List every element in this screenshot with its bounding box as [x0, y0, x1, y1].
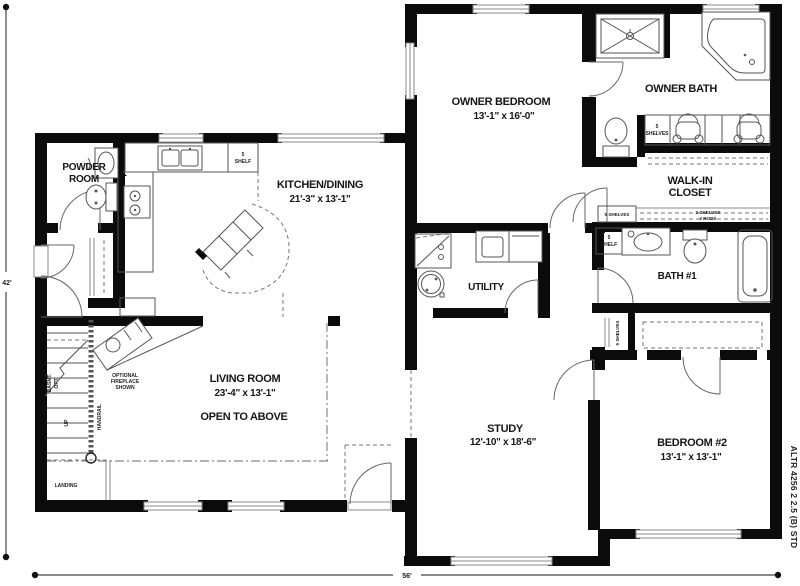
room-label-wic-1: WALK-IN — [668, 175, 713, 187]
bath1-door — [598, 268, 633, 303]
rear-door — [348, 463, 391, 510]
room-dims-kitchen: 21'-3" x 13'-1" — [290, 194, 351, 205]
dim-width: 56' — [402, 573, 412, 580]
window — [473, 5, 529, 13]
vanity-sink — [734, 114, 764, 143]
label-pantry-1: 5 — [242, 152, 245, 158]
hall-closet-door — [605, 318, 609, 347]
owner-bath-vanity — [670, 114, 770, 145]
water-heater — [418, 271, 444, 297]
bath1-toilet — [683, 230, 707, 263]
room-dims-living: 23'-4" x 13'-1" — [215, 388, 276, 399]
label-handrail: HANDRAIL — [97, 404, 103, 430]
kitchen-sink — [158, 146, 202, 170]
window — [451, 557, 552, 565]
corner-tub — [702, 12, 770, 80]
newel-post — [86, 453, 96, 463]
owner-bath-door — [589, 62, 623, 96]
bedroom2-closet — [643, 322, 762, 348]
dim-height: 42' — [2, 280, 12, 287]
range — [124, 186, 150, 218]
room-label-bedroom2: BEDROOM #2 — [657, 437, 727, 449]
room-label-bath1: BATH #1 — [658, 271, 698, 282]
room-label-living: LIVING ROOM — [210, 373, 281, 385]
shower — [596, 14, 664, 58]
label-bath1-shelf-2: SHELF — [601, 242, 617, 248]
room-label-owner-bedroom: OWNER BEDROOM — [452, 96, 551, 108]
owner-bath-shelves-box — [645, 115, 670, 145]
room-dims-bedroom2: 13'-1" x 13'-1" — [661, 452, 722, 463]
bath1-tub — [738, 230, 772, 302]
dryer — [509, 231, 542, 262]
label-basement-opt-1: BASMT. — [47, 373, 53, 392]
kitchen-fixtures — [113, 143, 289, 317]
floor-plan-sheet: POWDER ROOM KITCHEN/DINING 21'-3" x 13'-… — [0, 0, 800, 586]
window — [406, 43, 414, 99]
window — [636, 530, 741, 538]
label-landing: LANDING — [55, 483, 78, 489]
note-open-to-above: OPEN TO ABOVE — [200, 411, 287, 423]
powder-toilet — [86, 183, 117, 211]
front-door — [34, 245, 74, 278]
label-owner-bath-shelves-2: SHELVES — [646, 131, 670, 137]
room-dims-owner-bedroom: 13'-1" x 16'-0" — [474, 111, 535, 122]
room-label-study: STUDY — [487, 423, 524, 435]
label-owner-bath-shelves-1: 5 — [656, 124, 659, 130]
utility-door — [505, 280, 538, 313]
walkin-closet-door — [573, 188, 607, 222]
room-label-wic-2: CLOSET — [669, 187, 712, 199]
window — [144, 502, 202, 510]
window — [159, 134, 203, 142]
vanity-sink — [673, 114, 703, 143]
furnace — [415, 233, 451, 268]
kitchen-island — [195, 210, 263, 278]
foyer-door — [41, 276, 82, 317]
window — [278, 134, 384, 142]
label-pantry-2: SHELF — [235, 159, 251, 165]
room-label-utility: UTILITY — [468, 282, 504, 293]
label-up: UP — [64, 419, 70, 427]
label-hall-closet-shelves: 5 SHELVES — [615, 321, 620, 346]
label-wic-left-shelves: 5 SHELVES — [605, 212, 630, 217]
bath1-fixtures — [596, 228, 772, 302]
foyer-closet-door — [90, 238, 104, 296]
bedroom2-door — [683, 357, 720, 394]
label-fireplace-3: SHOWN — [115, 385, 135, 391]
washer — [476, 231, 509, 262]
owner-bath-toilet — [603, 118, 629, 157]
label-basement-opt-2: OPT. — [54, 377, 60, 389]
study-door — [554, 360, 594, 400]
room-label-powder-2: ROOM — [69, 174, 99, 185]
room-dims-study: 12'-10" x 18'-6" — [470, 437, 537, 448]
label-wic-right-shelves-2: 2 RODS — [699, 216, 716, 221]
owner-bedroom-door — [550, 193, 585, 228]
room-label-kitchen: KITCHEN/DINING — [277, 179, 363, 191]
plan-number: ALTR 4256 2 2.5 (B) STD — [789, 446, 799, 549]
window — [228, 502, 284, 510]
label-wic-right-shelves-1: 2 SHELVES — [696, 210, 721, 215]
room-label-powder-1: POWDER — [62, 162, 106, 173]
room-label-owner-bath: OWNER BATH — [645, 83, 717, 95]
label-bath1-shelf-1: 5 — [608, 235, 611, 241]
bath1-sink — [622, 228, 670, 255]
